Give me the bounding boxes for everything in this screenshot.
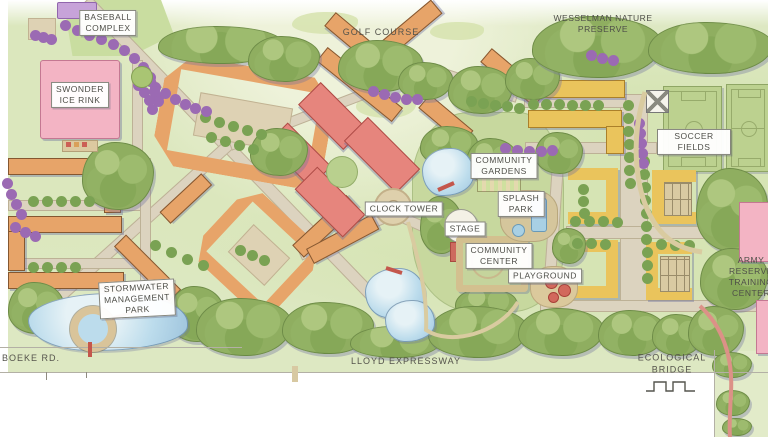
label-splash-park: SPLASH PARK bbox=[498, 191, 545, 217]
tree-cluster bbox=[398, 62, 453, 100]
median-marker bbox=[292, 366, 298, 382]
purple-tree-row bbox=[10, 222, 21, 233]
purple-tree-row bbox=[2, 178, 13, 189]
building-orange bbox=[8, 216, 122, 233]
label-ecological-bridge: ECOLOGICAL BRIDGE bbox=[624, 352, 720, 375]
purple-tree-row bbox=[586, 50, 597, 61]
cluster-green bbox=[326, 156, 358, 188]
label-stage: STAGE bbox=[445, 221, 486, 236]
tick bbox=[46, 372, 47, 380]
tree-row bbox=[150, 240, 161, 251]
tree-buffer bbox=[428, 306, 528, 358]
playground-equipment bbox=[548, 292, 559, 303]
purple-tree-row bbox=[160, 88, 171, 99]
tree-buffer bbox=[518, 308, 604, 356]
label-wesselman-nature-preserve: WESSELMAN NATURE PRESERVE bbox=[554, 13, 653, 35]
tree-cluster bbox=[250, 128, 308, 176]
site-plan-map: BASEBALL COMPLEX SWONDER ICE RINK GOLF C… bbox=[0, 0, 768, 437]
label-playground: PLAYGROUND bbox=[508, 268, 582, 283]
golf-mound bbox=[430, 22, 484, 40]
tree-row bbox=[572, 238, 583, 249]
purple-tree-row bbox=[30, 30, 41, 41]
purple-tree-row bbox=[368, 86, 379, 97]
tree-row bbox=[206, 132, 217, 143]
tree-row bbox=[28, 262, 39, 273]
purple-tree-row bbox=[60, 20, 71, 31]
field-marking bbox=[741, 121, 757, 137]
purple-tree-row bbox=[634, 118, 645, 129]
tree-row bbox=[578, 184, 589, 195]
label-boeke-rd: BOEKE RD. bbox=[2, 353, 60, 365]
label-lloyd-expressway: LLOYD EXPRESSWAY bbox=[351, 356, 461, 368]
label-stormwater-management-park: STORMWATER MANAGEMENT PARK bbox=[98, 278, 176, 319]
tree-cluster bbox=[82, 142, 154, 210]
bridge-section-icon bbox=[646, 382, 695, 391]
green-circle-plaza bbox=[131, 66, 153, 88]
label-community-gardens: COMMUNITY GARDENS bbox=[471, 153, 538, 179]
playground-equipment bbox=[558, 284, 571, 297]
army-reserve-building bbox=[756, 300, 768, 354]
tennis-courts bbox=[664, 182, 692, 216]
field-marking bbox=[738, 158, 761, 167]
field-marking bbox=[681, 91, 706, 101]
wesselman-forest bbox=[648, 22, 768, 74]
building-orange bbox=[8, 231, 25, 271]
tree-row bbox=[200, 112, 211, 123]
parked-cars bbox=[66, 142, 71, 147]
splash-pool-small bbox=[512, 224, 525, 237]
tree-row bbox=[28, 196, 39, 207]
tree-row bbox=[466, 96, 477, 107]
tree-cluster bbox=[716, 390, 750, 416]
tree-row bbox=[623, 100, 634, 111]
label-army-reserve-training-center: ARMY RESERVE TRAINING CENTER bbox=[729, 255, 768, 299]
building-yellow bbox=[606, 126, 624, 154]
pond bbox=[422, 148, 474, 196]
label-swonder-ice-rink: SWONDER ICE RINK bbox=[51, 82, 109, 108]
tree-buffer bbox=[688, 306, 744, 356]
tree-cluster bbox=[722, 418, 752, 436]
field-marking bbox=[681, 157, 706, 167]
utility-structure-icon bbox=[646, 90, 669, 113]
tennis-courts bbox=[660, 256, 690, 292]
tree-row bbox=[639, 156, 650, 167]
army-reserve-building bbox=[739, 202, 768, 262]
label-community-center: COMMUNITY CENTER bbox=[466, 243, 533, 269]
tick bbox=[86, 372, 87, 378]
tree-cluster bbox=[535, 132, 583, 174]
boeke-road-line bbox=[0, 347, 242, 348]
label-golf-course: GOLF COURSE bbox=[343, 27, 420, 39]
soccer-field bbox=[726, 84, 768, 172]
tree-row bbox=[570, 216, 581, 227]
tree-cluster bbox=[248, 36, 320, 82]
pond bbox=[385, 300, 435, 342]
tree-cluster bbox=[448, 66, 513, 114]
label-baseball-complex: BASEBALL COMPLEX bbox=[79, 10, 136, 36]
tree-row bbox=[235, 245, 246, 256]
label-soccer-fields: SOCCER FIELDS bbox=[657, 129, 731, 155]
tree-row bbox=[528, 99, 539, 110]
field-marking bbox=[738, 89, 761, 98]
label-clock-tower: CLOCK TOWER bbox=[365, 201, 443, 216]
